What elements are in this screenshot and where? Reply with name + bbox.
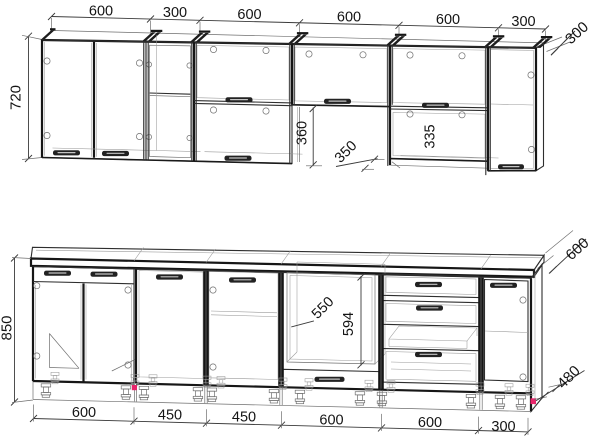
svg-text:600: 600 xyxy=(436,12,460,28)
svg-text:600: 600 xyxy=(319,412,343,428)
svg-text:594: 594 xyxy=(341,312,357,336)
svg-text:600: 600 xyxy=(72,405,96,421)
svg-text:450: 450 xyxy=(232,409,256,425)
svg-text:720: 720 xyxy=(8,85,25,110)
svg-text:300: 300 xyxy=(491,419,515,435)
svg-text:300: 300 xyxy=(163,5,187,21)
svg-text:600: 600 xyxy=(337,10,361,26)
svg-text:600: 600 xyxy=(89,3,113,19)
svg-text:335: 335 xyxy=(423,124,439,148)
svg-text:300: 300 xyxy=(511,14,535,30)
svg-text:850: 850 xyxy=(0,315,16,340)
svg-text:360: 360 xyxy=(295,121,311,145)
svg-text:600: 600 xyxy=(418,415,442,431)
svg-text:450: 450 xyxy=(158,407,182,423)
svg-text:600: 600 xyxy=(237,7,261,23)
